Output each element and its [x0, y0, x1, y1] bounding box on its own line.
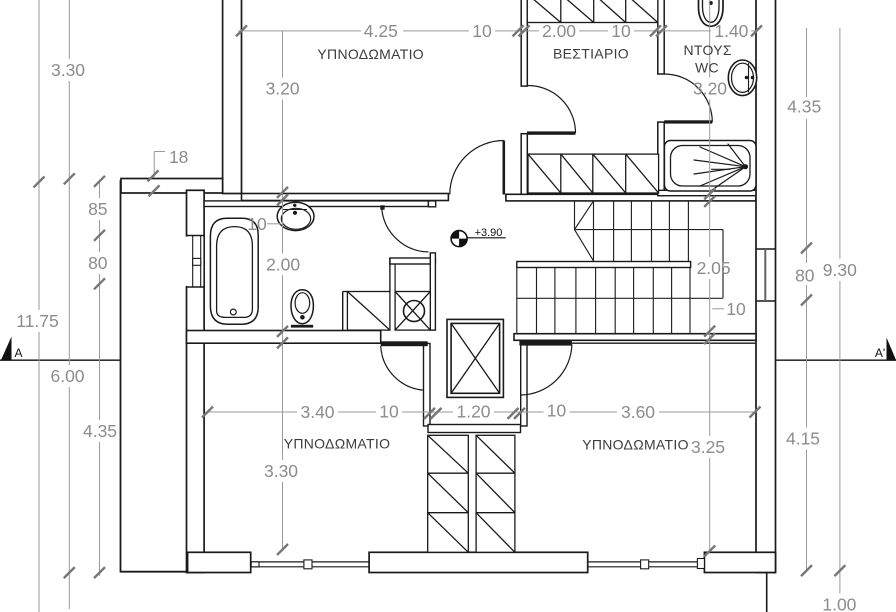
- svg-text:10: 10: [472, 21, 492, 41]
- svg-text:85: 85: [88, 199, 107, 219]
- svg-text:3.25: 3.25: [691, 437, 725, 457]
- svg-text:11.75: 11.75: [16, 311, 59, 331]
- svg-text:4.35: 4.35: [83, 421, 117, 441]
- svg-text:3.60: 3.60: [621, 402, 655, 422]
- svg-text:10: 10: [611, 21, 631, 41]
- svg-text:3.30: 3.30: [51, 60, 85, 80]
- svg-text:10: 10: [379, 402, 399, 422]
- svg-text:10: 10: [726, 299, 746, 319]
- svg-text:2.05: 2.05: [697, 258, 731, 278]
- svg-text:+3.90: +3.90: [475, 227, 503, 239]
- svg-text:80: 80: [88, 253, 108, 273]
- svg-text:3.40: 3.40: [300, 402, 334, 422]
- svg-text:4.15: 4.15: [786, 429, 820, 449]
- svg-text:ΥΠΝΟΔΩΜΑΤΙΟ: ΥΠΝΟΔΩΜΑΤΙΟ: [582, 437, 689, 453]
- svg-text:9.30: 9.30: [823, 260, 857, 280]
- svg-text:10: 10: [247, 214, 267, 234]
- svg-text:WC: WC: [695, 60, 719, 76]
- svg-text:A': A': [875, 346, 885, 360]
- svg-text:2.00: 2.00: [542, 21, 576, 41]
- svg-text:3.30: 3.30: [264, 461, 298, 481]
- svg-text:1.00: 1.00: [822, 595, 856, 612]
- svg-text:ΝΤΟΥΣ: ΝΤΟΥΣ: [684, 42, 732, 58]
- svg-text:18: 18: [169, 147, 188, 167]
- svg-text:4.25: 4.25: [364, 21, 398, 41]
- svg-text:2.00: 2.00: [266, 255, 300, 275]
- svg-text:4.35: 4.35: [787, 97, 821, 117]
- svg-text:ΒΕΣΤΙΑΡΙΟ: ΒΕΣΤΙΑΡΙΟ: [553, 46, 629, 62]
- svg-text:ΥΠΝΟΔΩΜΑΤΙΟ: ΥΠΝΟΔΩΜΑΤΙΟ: [284, 436, 391, 452]
- svg-text:10: 10: [547, 401, 567, 421]
- svg-text:ΥΠΝΟΔΩΜΑΤΙΟ: ΥΠΝΟΔΩΜΑΤΙΟ: [317, 46, 424, 62]
- svg-text:3.20: 3.20: [266, 79, 300, 99]
- svg-text:1.20: 1.20: [456, 402, 490, 422]
- svg-text:80: 80: [795, 266, 815, 286]
- svg-text:6.00: 6.00: [50, 366, 84, 386]
- svg-text:1.40: 1.40: [714, 21, 748, 41]
- svg-text:A: A: [14, 346, 22, 360]
- svg-text:3.20: 3.20: [693, 79, 727, 99]
